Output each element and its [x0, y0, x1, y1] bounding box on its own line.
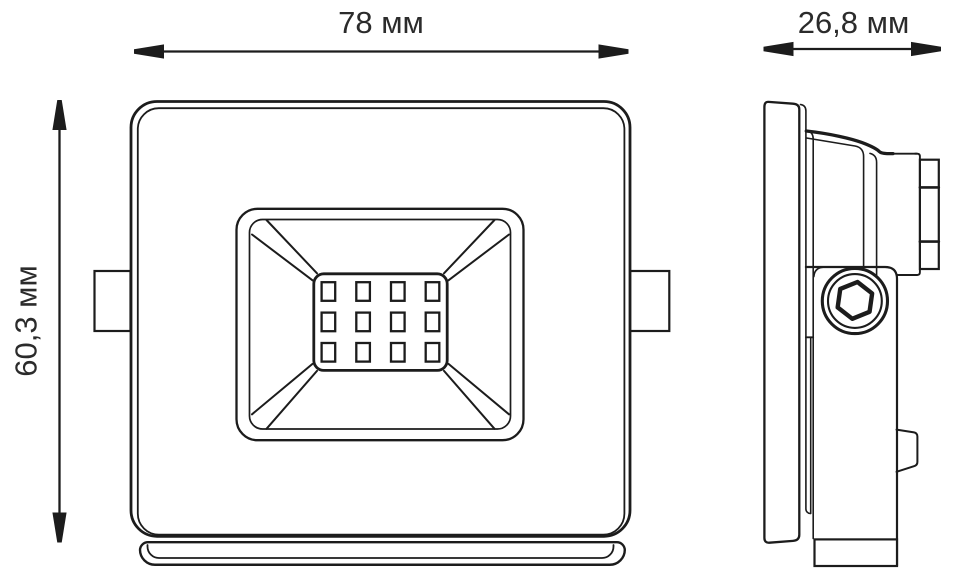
svg-text:78 мм: 78 мм [338, 5, 424, 40]
svg-text:26,8 мм: 26,8 мм [798, 5, 910, 40]
svg-text:60,3 мм: 60,3 мм [9, 265, 44, 377]
